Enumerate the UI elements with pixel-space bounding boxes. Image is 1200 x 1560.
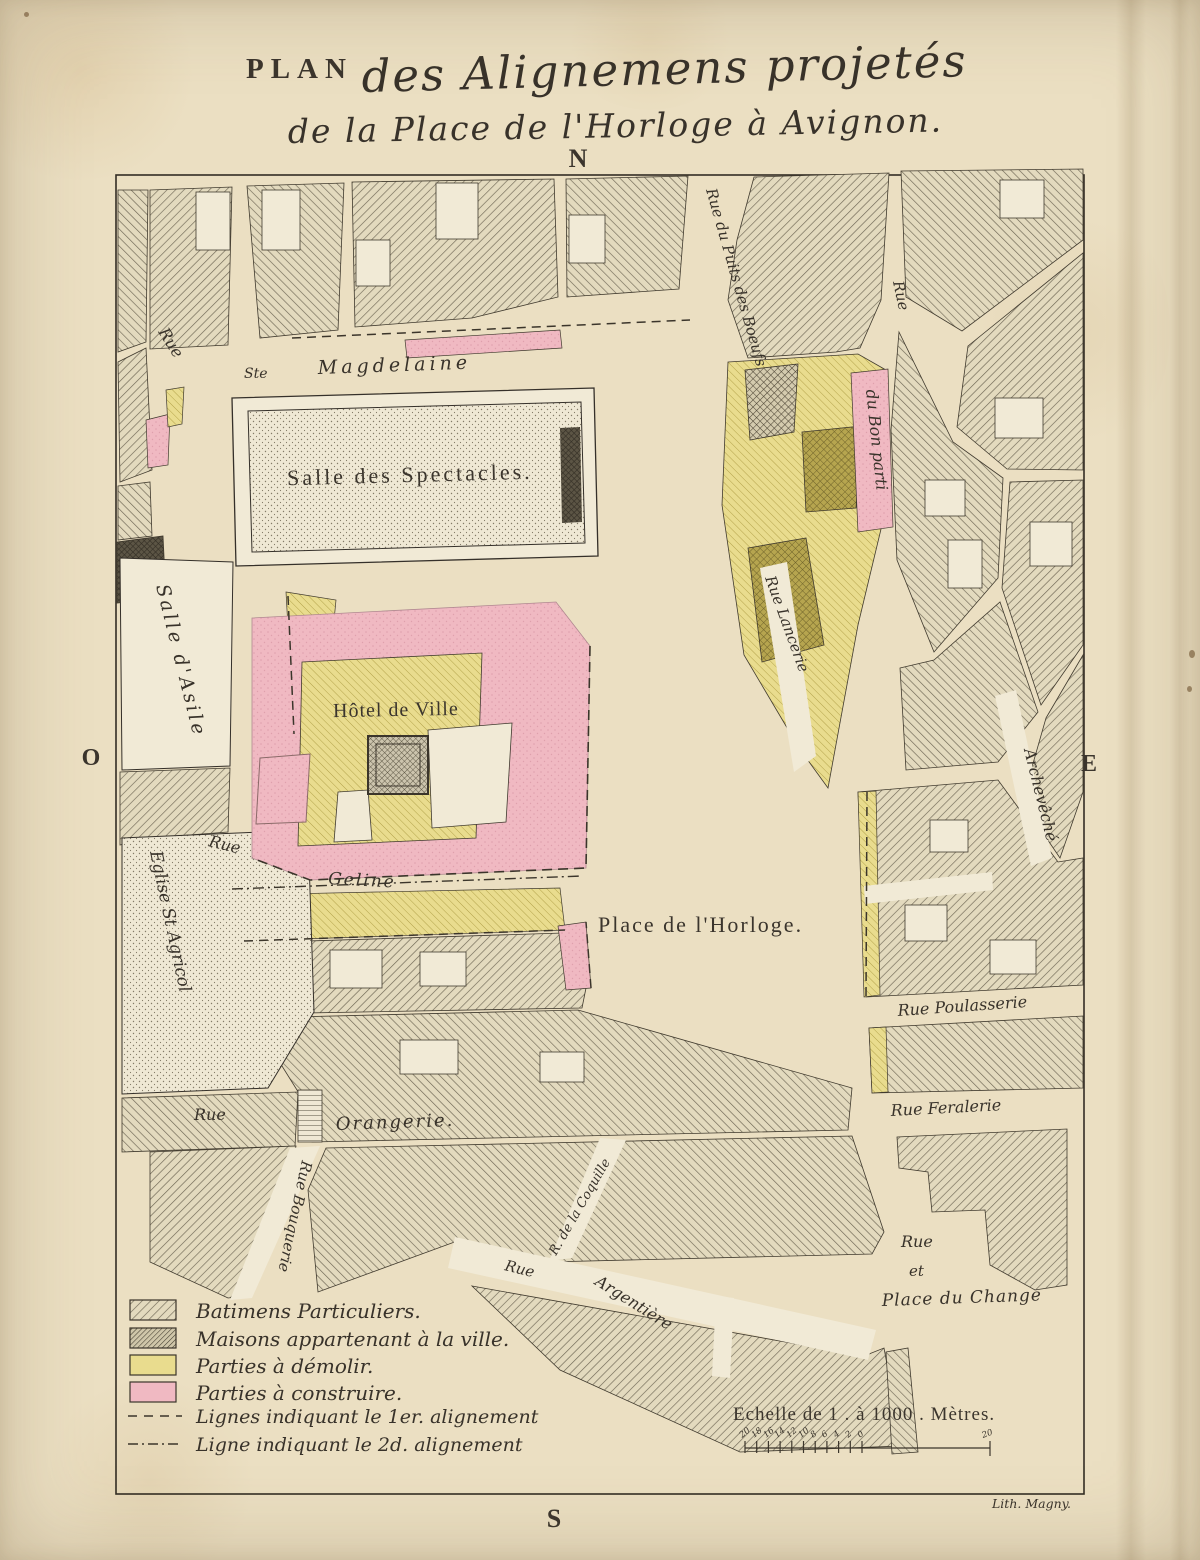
lithographer-credit: Lith. Magny.: [991, 1496, 1071, 1511]
compass-south: S: [547, 1504, 561, 1533]
street-label: Rue: [193, 1105, 226, 1124]
street-label: Rue Poulasserie: [896, 992, 1028, 1020]
street-label: Rue: [900, 1232, 933, 1251]
building-footprint: [540, 1052, 584, 1082]
building-footprint: [400, 1040, 458, 1074]
building-footprint: [1030, 522, 1072, 566]
hotel-de-ville-complex: [252, 602, 590, 880]
legend-item: Parties à démolir.: [130, 1354, 373, 1378]
legend-swatch-construire: [130, 1382, 176, 1402]
legend-item: Batimens Particuliers.: [130, 1299, 421, 1323]
street-label: Magdelaine: [316, 352, 471, 379]
title-plan-word: PLAN: [246, 53, 353, 85]
legend-label: Parties à démolir.: [195, 1354, 373, 1378]
courtyard: [334, 790, 372, 842]
street-label: Geline: [328, 869, 396, 893]
legend-swatch-demolir: [130, 1355, 176, 1375]
building-footprint: [330, 950, 382, 988]
title-block: PLAN des Alignemens projetés de la Place…: [246, 34, 968, 151]
building-footprint: [569, 215, 605, 263]
construction-area: [146, 414, 170, 468]
courtyard: [428, 723, 512, 828]
legend-label: Batimens Particuliers.: [195, 1299, 421, 1323]
building-footprint: [925, 480, 965, 516]
legend-item: Lignes indiquant le 1er. alignement: [128, 1406, 539, 1428]
stairs: [298, 1090, 322, 1142]
street-label: Ste: [244, 366, 268, 382]
street-label: Rue Feralerie: [889, 1095, 1001, 1120]
building-footprint: [948, 540, 982, 588]
demolition-area: [166, 387, 184, 427]
clock-tower: [368, 736, 428, 794]
legend-label: Maisons appartenant à la ville.: [195, 1327, 509, 1351]
legend-item: Maisons appartenant à la ville.: [130, 1327, 509, 1351]
title-line1: des Alignemens projetés: [361, 34, 968, 103]
title-line2: de la Place de l'Horloge à Avignon.: [287, 101, 943, 151]
city-plan-drawing: Rue Ste Magdelaine Salle des Spectacles.…: [0, 0, 1200, 1560]
building-block: [118, 190, 148, 352]
legend-swatch-maisons: [130, 1328, 176, 1348]
compass-east: E: [1081, 751, 1097, 777]
building-block: [118, 482, 152, 540]
map-sheet: Rue Ste Magdelaine Salle des Spectacles.…: [0, 0, 1200, 1560]
legend-label: Parties à construire.: [195, 1381, 402, 1405]
legend-swatch-batimens: [130, 1300, 176, 1320]
construction-building: [256, 754, 310, 824]
building-footprint: [420, 952, 466, 986]
legend-label: Lignes indiquant le 1er. alignement: [195, 1406, 539, 1428]
city-house-block: [745, 364, 798, 440]
building-block: [118, 348, 152, 482]
building-footprint: [436, 183, 478, 239]
compass-west: O: [82, 745, 101, 771]
street-label: Place du Change: [880, 1285, 1042, 1311]
building-footprint: [995, 398, 1043, 438]
building-footprint: [262, 190, 300, 250]
building-block: [869, 1016, 1083, 1093]
scale-caption: Echelle de 1 . à 1000 . Mètres.: [733, 1404, 995, 1425]
building-footprint: [356, 240, 390, 286]
building-footprint: [905, 905, 947, 941]
legend-item: Parties à construire.: [130, 1381, 402, 1405]
legend-label: Ligne indiquant le 2d. alignement: [195, 1434, 523, 1456]
scale-tick-far: 20: [980, 1428, 995, 1442]
street-label: Orangerie.: [335, 1110, 454, 1135]
legend: Batimens Particuliers. Maisons appartena…: [128, 1299, 539, 1456]
building-footprint: [930, 820, 968, 852]
building-footprint: [990, 940, 1036, 974]
spectacles-stage: [560, 427, 582, 523]
building-footprint: [1000, 180, 1044, 218]
city-house-block: [802, 426, 862, 512]
place-de-l-horloge-label: Place de l'Horloge.: [598, 912, 803, 937]
street-label: et: [909, 1262, 925, 1280]
legend-item: Ligne indiquant le 2d. alignement: [128, 1434, 523, 1456]
hotel-de-ville-label: Hôtel de Ville: [333, 698, 459, 722]
demolition-area: [869, 1027, 888, 1093]
building-footprint: [196, 192, 230, 250]
compass-north: N: [569, 144, 588, 173]
building-block: [886, 1348, 918, 1454]
